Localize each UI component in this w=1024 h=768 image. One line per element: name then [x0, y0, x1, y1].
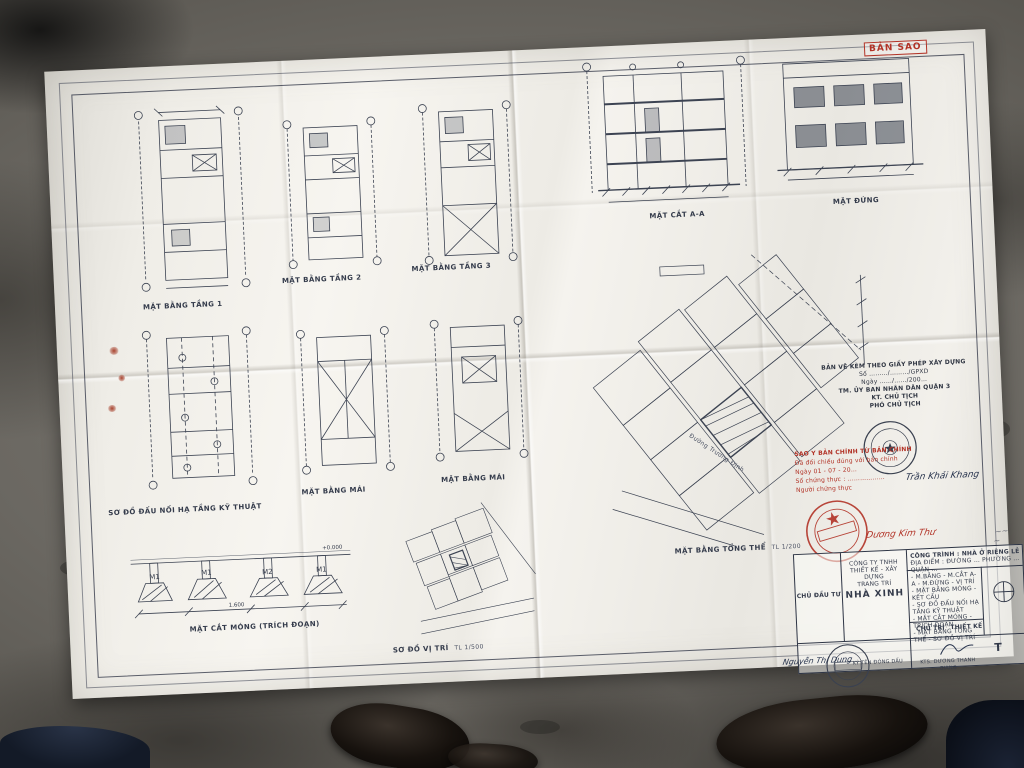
tb-project: CÔNG TRÌNH : NHÀ Ở RIÊNG LẺ ĐỊA ĐIỂM : Đ… — [910, 548, 1021, 574]
roof-plan-1-drawing — [292, 324, 399, 476]
shoe-shadow — [447, 741, 539, 768]
foundation-section-drawing: M1 M1 M2 M1 +0.000 1.600 — [130, 540, 353, 622]
footing-mark: M1 — [149, 573, 160, 581]
trouser-fabric-left — [0, 726, 150, 768]
tb-sign-label: KÝ TÊN ĐÓNG DẤU — [846, 658, 910, 668]
floor-plan-1-drawing — [128, 102, 256, 297]
footing-mark: M1 — [316, 565, 327, 573]
footing-mark: M2 — [262, 568, 273, 576]
floor-plan-3-drawing — [414, 96, 522, 268]
location-map-drawing — [396, 498, 542, 639]
elevation-drawing — [770, 44, 926, 196]
footing-mark: M1 — [201, 569, 212, 577]
title-block: CHỦ ĐẦU TƯ CÔNG TY TNHH THIẾT KẾ - XÂY D… — [793, 544, 1024, 674]
photo-scene: BẢN SAO MẶT BẰNG TẦNG 1 — [0, 0, 1024, 768]
trouser-fabric-right — [946, 700, 1024, 768]
blueprint-paper: BẢN SAO MẶT BẰNG TẦNG 1 — [44, 29, 1014, 699]
floor-plan-2-drawing — [279, 115, 386, 271]
tb-partial-text: T — [994, 644, 1002, 651]
section-aa-drawing — [572, 54, 754, 212]
tb-company-name: NHÀ XINH — [843, 590, 907, 600]
certification-block: SAO Y BẢN CHÍNH TỪ BẢN CHÍNH Đã đối chiế… — [794, 445, 913, 495]
roof-plan-2-drawing — [426, 314, 532, 463]
approval-block: BẢN VẼ KÈM THEO GIẤY PHÉP XÂY DỰNG Số ……… — [818, 358, 970, 413]
north-symbol — [991, 579, 1016, 604]
floor-speck — [520, 720, 560, 734]
level-mark: +0.000 — [322, 545, 343, 552]
dimension-strip — [850, 274, 874, 365]
pencil-note: ~~ ~ — [993, 526, 1010, 546]
tb-drawing-list: - M.BẰNG - M.CẮT A-A - M.ĐỨNG - VỊ TRÍ -… — [911, 571, 982, 644]
tb-owner-label: CHỦ ĐẦU TƯ — [796, 591, 842, 600]
dimension-text: 1.600 — [229, 602, 246, 609]
utility-plan-drawing — [136, 324, 263, 494]
shoe-right — [713, 687, 931, 768]
tb-company: CÔNG TY TNHH THIẾT KẾ - XÂY DỰNG TRANG T… — [841, 558, 907, 600]
architect-signature-mark — [936, 639, 977, 659]
tb-architect-name: KTS. DƯƠNG THANH GIANG — [911, 657, 986, 674]
